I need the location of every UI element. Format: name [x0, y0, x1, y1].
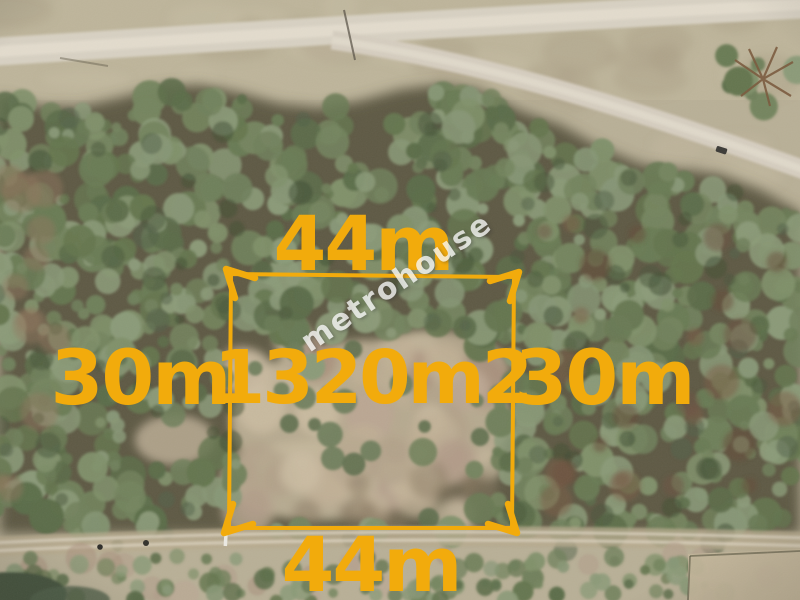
plot-area-label: 1320m2 — [214, 341, 531, 415]
corner-arrow-top-left-icon — [226, 269, 255, 298]
plot-depth-label-right: 30m — [515, 340, 694, 416]
aerial-photo: 44m 30m 1320m2 30m 44m metrohouse — [0, 0, 800, 600]
plot-width-label-bottom: 44m — [282, 527, 461, 600]
corner-arrow-bottom-left-icon — [224, 504, 253, 533]
plot-depth-label-left: 30m — [51, 340, 230, 416]
corner-arrow-top-right-icon — [490, 272, 519, 301]
corner-arrow-bottom-right-icon — [488, 504, 517, 533]
